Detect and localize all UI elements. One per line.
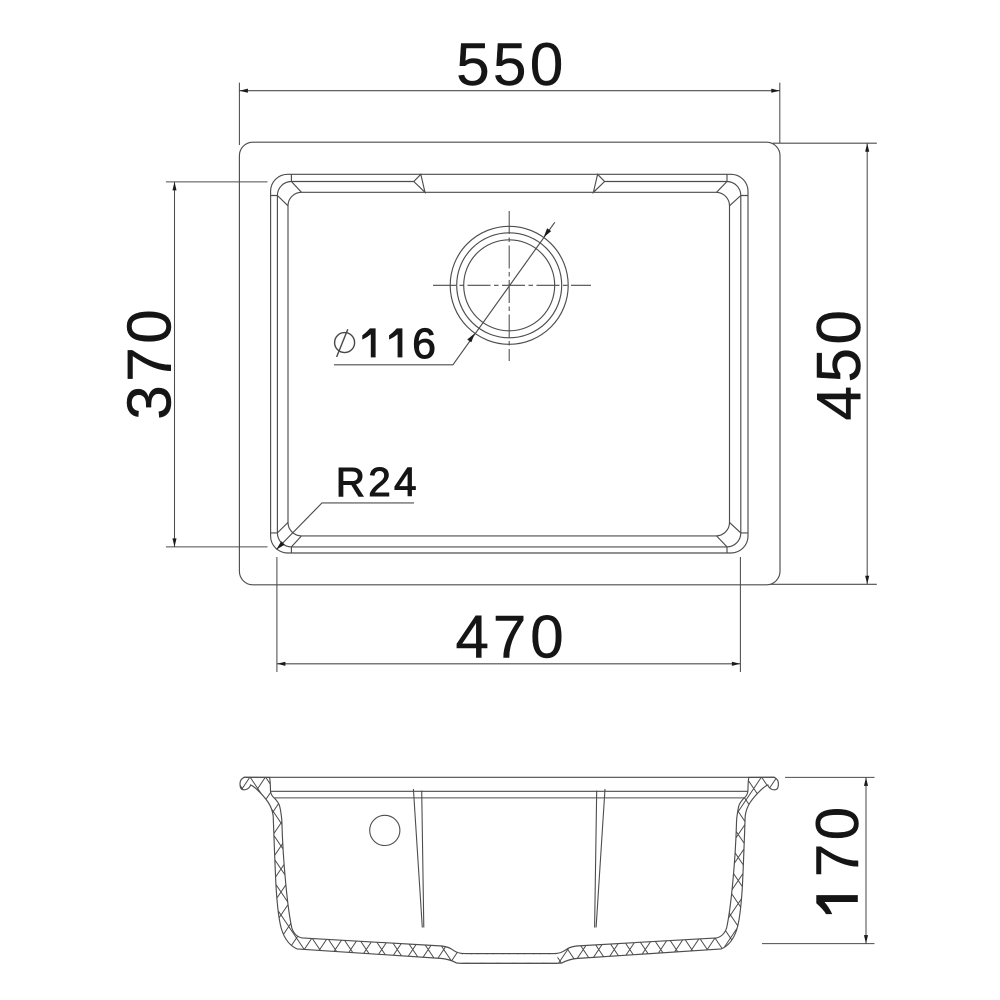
- svg-text:6: 6: [412, 321, 436, 368]
- svg-text:370: 370: [115, 306, 184, 420]
- svg-text:550: 550: [456, 31, 567, 98]
- svg-text:450: 450: [805, 307, 874, 421]
- svg-text:R24: R24: [336, 459, 420, 505]
- svg-text:70: 70: [804, 803, 871, 877]
- svg-text:470: 470: [456, 604, 568, 671]
